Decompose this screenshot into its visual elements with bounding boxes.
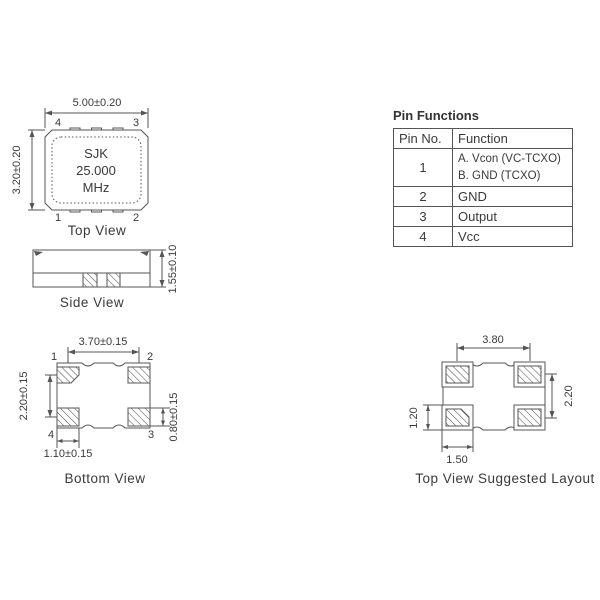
pin-function-cell: Vcc xyxy=(453,227,573,247)
land-pad-bottom-left-chamfered xyxy=(442,405,473,430)
pin-number-3: 3 xyxy=(148,429,154,441)
table-row: 4 Vcc xyxy=(394,227,573,247)
col-header-pin-no: Pin No. xyxy=(394,129,453,149)
pin-no-cell: 3 xyxy=(394,207,453,227)
pad-4 xyxy=(57,408,79,426)
pin-number-3: 3 xyxy=(133,117,139,129)
land-pad-top-left xyxy=(442,362,473,387)
table-header-row: Pin No. Function xyxy=(394,129,573,149)
table-row: 3 Output xyxy=(394,207,573,227)
side-profile-outline xyxy=(33,250,150,287)
pin-function-cell: Output xyxy=(453,207,573,227)
side-view-label: Side View xyxy=(60,295,124,310)
dim-label-land-pitch-x: 3.80 xyxy=(482,334,503,346)
land-pad-top-right xyxy=(514,362,545,387)
pin-number-1: 1 xyxy=(51,351,57,363)
dim-label-package-height: 3.20±0.20 xyxy=(11,146,23,195)
side-pad xyxy=(83,273,97,287)
pin-functions-table: Pin No. Function 1 A. Vcon (VC-TCXO) B. … xyxy=(393,128,573,247)
pin-function-cell: GND xyxy=(453,187,573,207)
dim-label-pad-pitch-y: 2.20±0.15 xyxy=(18,372,30,421)
layout-pad-width-dimension: 1.50 xyxy=(442,430,473,466)
suggested-layout-drawing: 3.80 2.20 xyxy=(395,330,600,495)
pin1-function-a: A. Vcon (VC-TCXO) xyxy=(458,153,561,165)
side-pad xyxy=(107,273,120,287)
side-view-drawing: 1.55±0.10 Side View xyxy=(0,243,210,317)
pad-2 xyxy=(128,367,150,383)
dim-label-thickness: 1.55±0.10 xyxy=(167,245,179,294)
table-row: 1 A. Vcon (VC-TCXO) B. GND (TCXO) xyxy=(394,149,573,187)
marking-frequency: 25.000 xyxy=(76,163,116,178)
bottom-view-pad-height-dimension: 0.80±0.15 xyxy=(150,393,180,442)
pin-no-cell: 2 xyxy=(394,187,453,207)
dim-label-pad-pitch-x: 3.70±0.15 xyxy=(79,336,128,348)
bottom-view-pitch-y-dimension: 2.20±0.15 xyxy=(18,372,57,421)
pin-functions-section: Pin Functions Pin No. Function 1 A. Vcon… xyxy=(393,108,579,247)
marking-brand: SJK xyxy=(84,146,108,161)
dim-label-pad-height: 0.80±0.15 xyxy=(168,393,180,442)
top-view-label: Top View xyxy=(68,223,127,238)
dim-label-land-pitch-y: 2.20 xyxy=(563,385,575,406)
layout-pad-height-dimension: 1.20 xyxy=(408,405,442,430)
suggested-layout-label: Top View Suggested Layout xyxy=(415,471,595,486)
dim-label-land-width: 1.50 xyxy=(446,454,467,466)
corner-mark-left xyxy=(34,251,43,256)
pin-number-2: 2 xyxy=(147,351,153,363)
bottom-view-label: Bottom View xyxy=(64,471,145,486)
pad-1-chamfered xyxy=(57,367,79,383)
side-view-thickness-dimension: 1.55±0.10 xyxy=(150,245,179,294)
pin-number-2: 2 xyxy=(133,212,139,224)
bottom-view-pitch-x-dimension: 3.70±0.15 xyxy=(68,336,139,363)
dim-label-package-width: 5.00±0.20 xyxy=(73,97,122,109)
pin-no-cell: 1 xyxy=(394,149,453,187)
pin-number-4: 4 xyxy=(48,429,54,441)
pin1-function-b: B. GND (TCXO) xyxy=(458,170,540,182)
pin-functions-title: Pin Functions xyxy=(393,108,579,123)
marking-unit: MHz xyxy=(83,180,110,195)
bottom-view-drawing: 3.70±0.15 1 2 4 3 2.20±0.15 xyxy=(10,330,230,512)
layout-pitch-x-dimension: 3.80 xyxy=(457,334,530,361)
pin-number-4: 4 xyxy=(55,117,61,129)
pin-no-cell: 4 xyxy=(394,227,453,247)
table-row: 2 GND xyxy=(394,187,573,207)
top-view-drawing: 5.00±0.20 4 3 1 2 SJK 25.000 MHz 3.20±0.… xyxy=(0,88,210,250)
pin-number-1: 1 xyxy=(55,212,61,224)
layout-pitch-y-dimension: 2.20 xyxy=(545,374,575,418)
dim-label-pad-width: 1.10±0.15 xyxy=(44,448,93,460)
pad-3 xyxy=(128,408,150,426)
pin-function-cell: A. Vcon (VC-TCXO) B. GND (TCXO) xyxy=(453,149,573,187)
top-view-height-dimension: 3.20±0.20 xyxy=(11,130,45,210)
land-pad-bottom-right xyxy=(514,405,545,430)
datasheet-page: 5.00±0.20 4 3 1 2 SJK 25.000 MHz 3.20±0.… xyxy=(0,0,600,600)
dim-label-land-height: 1.20 xyxy=(408,407,420,428)
corner-mark-right xyxy=(140,251,149,256)
col-header-function: Function xyxy=(453,129,573,149)
